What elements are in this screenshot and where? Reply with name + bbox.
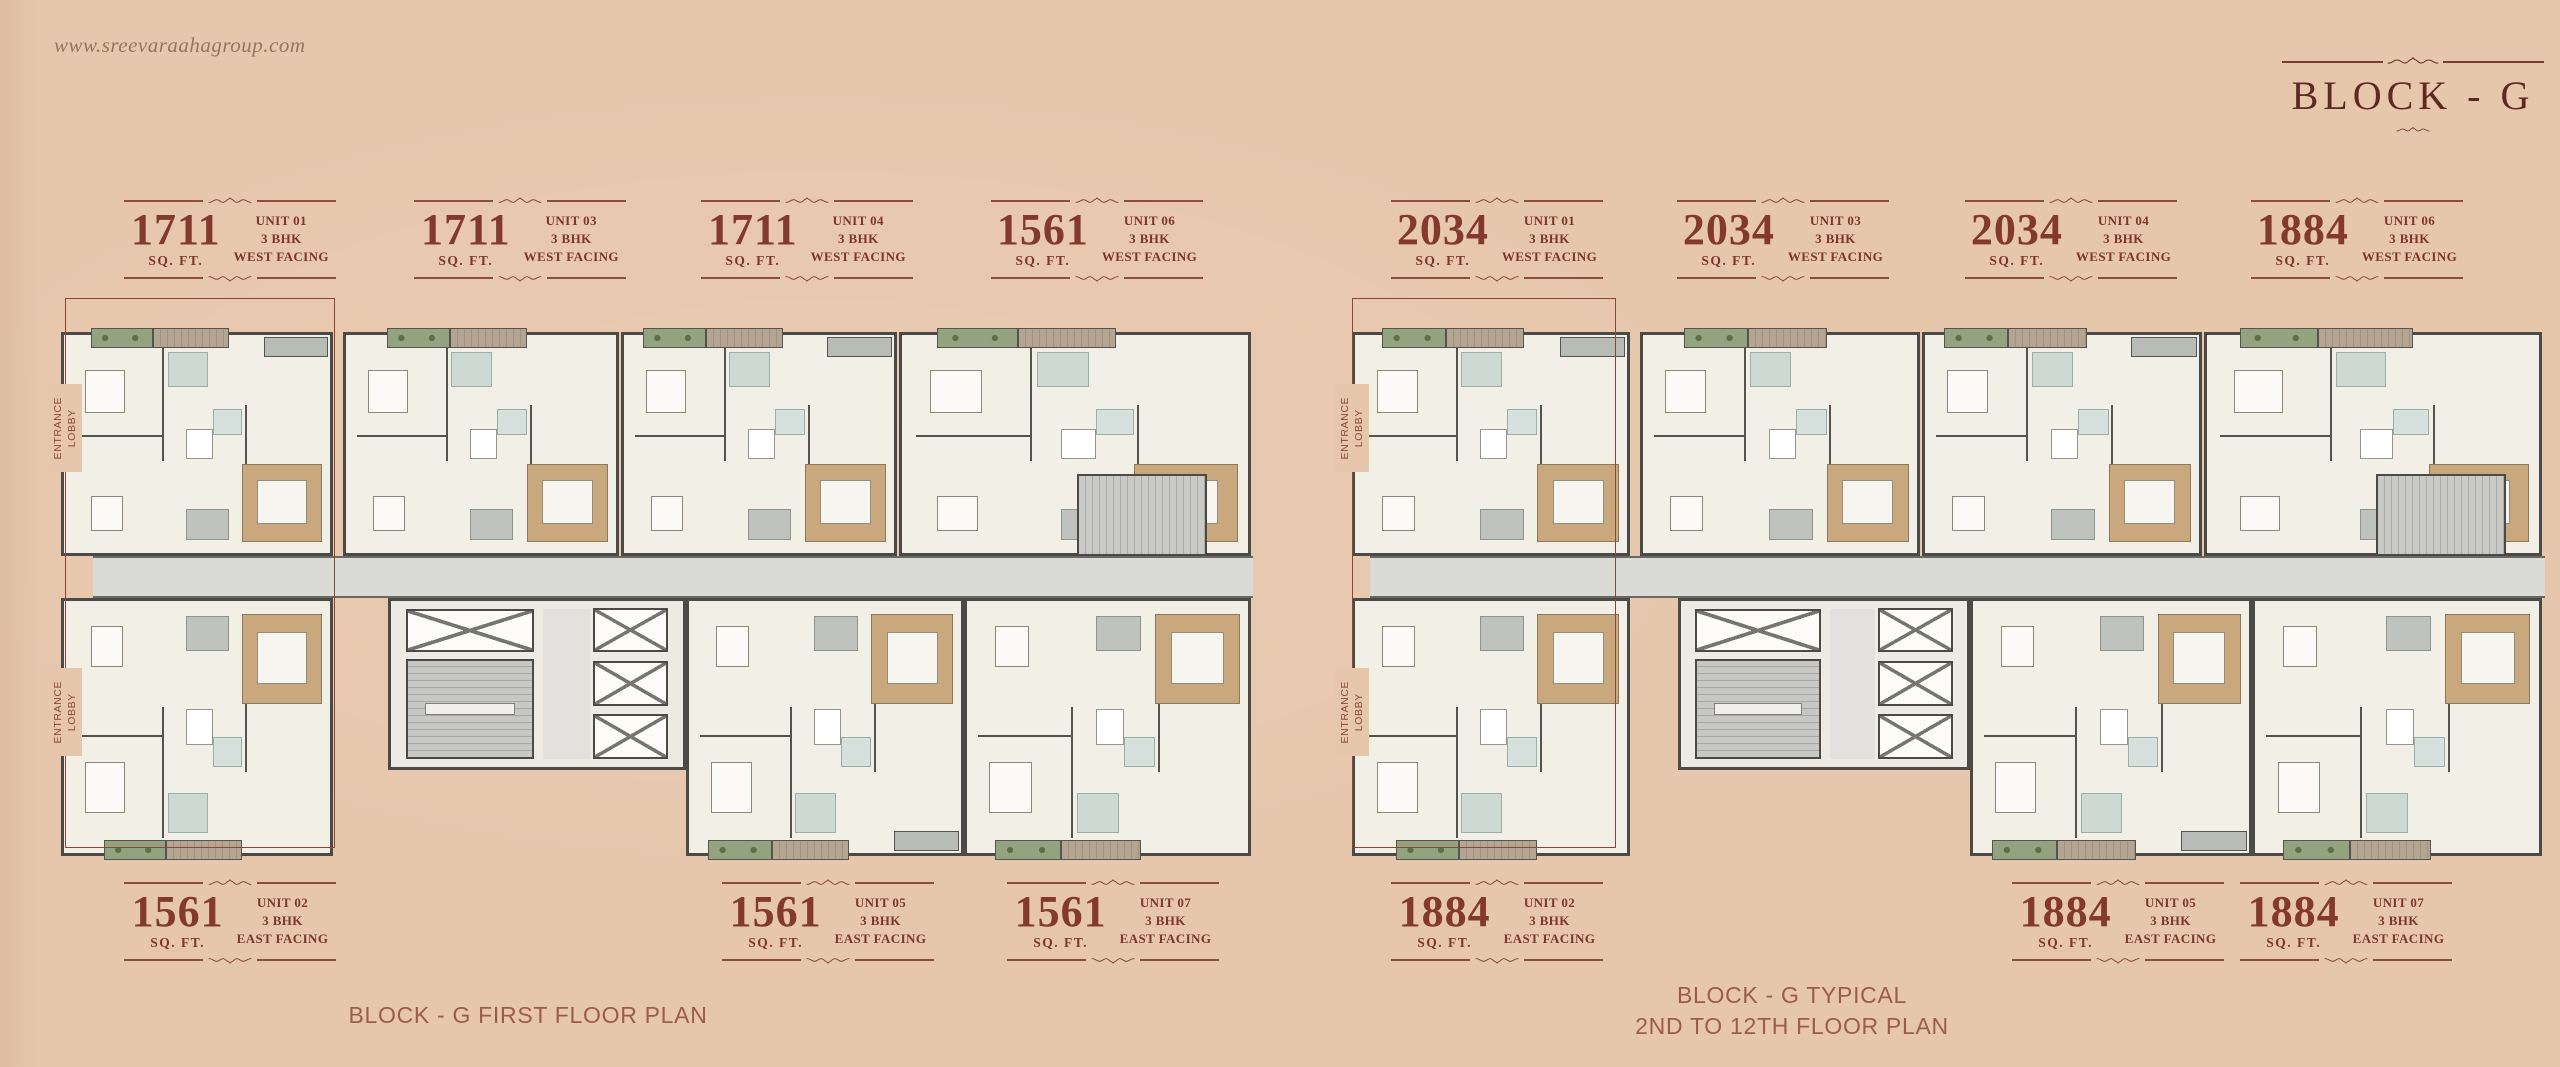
unit-facing: WEST FACING: [811, 248, 906, 266]
kitchen: [186, 616, 229, 651]
planter-balcony: [387, 328, 450, 348]
unit-number: UNIT 07: [1120, 894, 1212, 912]
apartment-unit: [2252, 598, 2542, 856]
bed: [716, 626, 749, 666]
lift-shaft: [593, 661, 669, 706]
bed: [1995, 762, 2036, 812]
unit-type: 3 BHK: [1504, 912, 1596, 930]
plan-caption-line: BLOCK - G FIRST FLOOR PLAN: [348, 1000, 707, 1031]
flourish-ornament-icon: [1475, 273, 1519, 283]
interior-wall: [2220, 435, 2330, 437]
bathroom: [2032, 352, 2073, 387]
flourish-ornament-icon: [208, 273, 252, 283]
area-value: 2034: [1683, 209, 1775, 251]
utility-deck: [264, 337, 328, 357]
master-bedroom: [1827, 464, 1909, 542]
flourish-rule: [1007, 955, 1219, 965]
unit-facing: WEST FACING: [1102, 248, 1197, 266]
utility-deck: [827, 337, 892, 357]
bed: [373, 496, 405, 531]
bathroom: [2128, 737, 2158, 767]
unit-label-body: 1711SQ. FT.UNIT 043 BHKWEST FACING: [701, 206, 913, 273]
floor-plan: ENTRANCE LOBBYENTRANCE LOBBY: [55, 298, 1253, 862]
unit-number: UNIT 01: [1502, 212, 1597, 230]
flourish-rule: [2012, 955, 2224, 965]
interior-wall: [75, 735, 163, 737]
deck-balcony: [2350, 840, 2431, 860]
bed: [2461, 632, 2514, 683]
interior-wall: [162, 348, 164, 461]
master-bedroom: [1155, 614, 1239, 705]
kitchen: [2051, 509, 2095, 540]
bathroom: [1096, 409, 1134, 435]
corridor: [1370, 556, 2545, 598]
unit-facing: EAST FACING: [2125, 930, 2217, 948]
corridor: [93, 556, 1253, 598]
planter-balcony: [708, 840, 772, 860]
area-value: 1561: [997, 209, 1089, 251]
unit-label-body: 1884SQ. FT.UNIT 053 BHKEAST FACING: [2012, 888, 2224, 955]
bathroom: [1037, 352, 1089, 387]
area-value: 1884: [1399, 891, 1491, 933]
entrance-lobby-label: ENTRANCE LOBBY: [48, 668, 82, 756]
apartment-unit: [61, 598, 333, 856]
deck-balcony: [450, 328, 527, 348]
planter-balcony: [1944, 328, 2008, 348]
bathroom: [1461, 793, 1502, 833]
bathroom: [2336, 352, 2386, 387]
bathroom: [2081, 793, 2122, 833]
unit-info: UNIT 023 BHKEAST FACING: [1504, 894, 1596, 948]
area-block: 1561SQ. FT.: [132, 891, 224, 951]
bathroom: [2078, 409, 2108, 435]
unit-number: UNIT 04: [811, 212, 906, 230]
interior-wall: [2026, 348, 2028, 461]
flourish-rule: [1965, 273, 2177, 283]
interior-wall: [1030, 348, 1032, 461]
block-g-floorplan-poster: www.sreevaraahagroup.com BLOCK - G 1711S…: [0, 0, 2560, 1067]
unit-label-body: 2034SQ. FT.UNIT 013 BHKWEST FACING: [1391, 206, 1603, 273]
bed: [1382, 496, 1415, 531]
unit-area-label: 1884SQ. FT.UNIT 073 BHKEAST FACING: [2240, 878, 2452, 965]
bed: [1665, 370, 1706, 414]
bathroom: [168, 352, 208, 387]
bathroom: [451, 352, 492, 387]
balcony-strip: [104, 840, 242, 860]
lift-shaft: [1878, 661, 1952, 706]
interior-wall: [790, 707, 792, 838]
unit-info: UNIT 013 BHKWEST FACING: [1502, 212, 1597, 266]
apartment-unit: [621, 332, 897, 556]
bed: [368, 370, 409, 414]
area-value: 1711: [421, 209, 511, 251]
unit-facing: EAST FACING: [237, 930, 329, 948]
bathroom: [1461, 352, 1502, 387]
unit-facing: EAST FACING: [1120, 930, 1212, 948]
lift-shaft: [593, 608, 669, 653]
balcony-strip: [708, 840, 849, 860]
unit-facing: EAST FACING: [1504, 930, 1596, 948]
kitchen: [2386, 616, 2431, 651]
flourish-rule: [1391, 273, 1603, 283]
unit-area-label: 1711SQ. FT.UNIT 033 BHKWEST FACING: [414, 196, 626, 283]
bathroom: [1796, 409, 1826, 435]
unit-area-label: 1711SQ. FT.UNIT 043 BHKWEST FACING: [701, 196, 913, 283]
entrance-lobby-text: ENTRANCE LOBBY: [51, 397, 79, 460]
bathroom: [213, 409, 242, 435]
area-unit: SQ. FT.: [2257, 253, 2349, 269]
unit-label-body: 1711SQ. FT.UNIT 033 BHKWEST FACING: [414, 206, 626, 273]
master-bedroom: [242, 614, 322, 705]
area-unit: SQ. FT.: [1015, 935, 1107, 951]
deck-balcony: [2008, 328, 2086, 348]
interior-wall: [978, 735, 1071, 737]
bathroom: [1750, 352, 1791, 387]
unit-facing: WEST FACING: [524, 248, 619, 266]
unit-info: UNIT 063 BHKWEST FACING: [1102, 212, 1197, 266]
area-unit: SQ. FT.: [1971, 253, 2063, 269]
planter-balcony: [104, 840, 166, 860]
unit-label-body: 2034SQ. FT.UNIT 043 BHKWEST FACING: [1965, 206, 2177, 273]
flourish-ornament-icon: [1475, 955, 1519, 965]
unit-number: UNIT 02: [1504, 894, 1596, 912]
interior-wall: [2360, 707, 2362, 838]
bathroom: [775, 409, 805, 435]
kitchen: [1769, 509, 1813, 540]
interior-wall: [1071, 707, 1073, 838]
area-unit: SQ. FT.: [2020, 935, 2112, 951]
flourish-ornament-icon: [208, 955, 252, 965]
flourish-ornament-icon: [2387, 56, 2439, 67]
rule-line: [2282, 61, 2383, 63]
bed: [1382, 626, 1415, 666]
unit-info: UNIT 063 BHKWEST FACING: [2362, 212, 2457, 266]
bed: [646, 370, 687, 414]
block-title-text: BLOCK - G: [2282, 72, 2544, 119]
bed: [820, 480, 871, 524]
interior-wall: [1654, 435, 1744, 437]
flourish-rule: [1391, 955, 1603, 965]
area-unit: SQ. FT.: [1399, 935, 1491, 951]
unit-info: UNIT 023 BHKEAST FACING: [237, 894, 329, 948]
unit-label-body: 1884SQ. FT.UNIT 073 BHKEAST FACING: [2240, 888, 2452, 955]
flourish-ornament-icon: [1761, 273, 1805, 283]
unit-number: UNIT 01: [234, 212, 329, 230]
interior-wall: [916, 435, 1030, 437]
area-block: 1884SQ. FT.: [2248, 891, 2340, 951]
utility-deck: [1560, 337, 1625, 357]
unit-type: 3 BHK: [2076, 230, 2171, 248]
bed: [91, 626, 123, 666]
unit-area-label: 1561SQ. FT.UNIT 063 BHKWEST FACING: [991, 196, 1203, 283]
bed: [2283, 626, 2317, 666]
entrance-lobby-label: ENTRANCE LOBBY: [48, 384, 82, 472]
interior-wall: [1456, 707, 1458, 838]
bed: [2278, 762, 2321, 812]
unit-info: UNIT 073 BHKEAST FACING: [1120, 894, 1212, 948]
unit-number: UNIT 05: [835, 894, 927, 912]
area-value: 2034: [1397, 209, 1489, 251]
flourish-ornament-icon: [2049, 273, 2093, 283]
bathroom: [795, 793, 836, 833]
unit-facing: EAST FACING: [835, 930, 927, 948]
flourish-ornament-icon: [785, 273, 829, 283]
bed: [542, 480, 593, 524]
apartment-unit: [964, 598, 1251, 856]
bathroom: [841, 737, 871, 767]
interior-wall: [357, 435, 446, 437]
master-bedroom: [805, 464, 886, 542]
unit-number: UNIT 06: [1102, 212, 1197, 230]
website-url: www.sreevaraahagroup.com: [54, 33, 306, 58]
planter-balcony: [2283, 840, 2349, 860]
bed: [1377, 370, 1418, 414]
unit-number: UNIT 07: [2353, 894, 2445, 912]
deck-balcony: [2057, 840, 2136, 860]
unit-label-body: 2034SQ. FT.UNIT 033 BHKWEST FACING: [1677, 206, 1889, 273]
unit-type: 3 BHK: [2362, 230, 2457, 248]
area-unit: SQ. FT.: [131, 253, 221, 269]
flourish-rule: [124, 955, 336, 965]
bed: [711, 762, 752, 812]
apartment-unit: [61, 332, 333, 556]
entrance-lobby-label: ENTRANCE LOBBY: [1335, 384, 1369, 472]
interior-wall: [2266, 735, 2360, 737]
area-unit: SQ. FT.: [421, 253, 511, 269]
plan-caption-line: 2ND TO 12TH FLOOR PLAN: [1635, 1011, 1949, 1042]
unit-number: UNIT 02: [237, 894, 329, 912]
lift-shaft: [593, 714, 669, 759]
bed: [1670, 496, 1703, 531]
utility-deck: [894, 831, 959, 851]
dining-table: [2051, 429, 2078, 460]
area-value: 2034: [1971, 209, 2063, 251]
balcony-strip: [1396, 840, 1537, 860]
block-title: BLOCK - G: [2282, 56, 2544, 134]
area-unit: SQ. FT.: [132, 935, 224, 951]
bed: [1377, 762, 1418, 812]
unit-label-body: 1561SQ. FT.UNIT 053 BHKEAST FACING: [722, 888, 934, 955]
lift-lobby: [543, 609, 590, 758]
utility-deck: [2131, 337, 2197, 357]
unit-label-body: 1711SQ. FT.UNIT 013 BHKWEST FACING: [124, 206, 336, 273]
bed: [2001, 626, 2034, 666]
area-block: 1561SQ. FT.: [997, 209, 1089, 269]
lift-stair-core: [1678, 598, 1970, 770]
unit-number: UNIT 03: [1788, 212, 1883, 230]
area-value: 1561: [132, 891, 224, 933]
plan-caption: BLOCK - G FIRST FLOOR PLAN: [348, 1000, 707, 1031]
stair-rail: [425, 703, 515, 714]
bathroom: [2366, 793, 2409, 833]
interior-wall: [75, 435, 163, 437]
lift-shaft: [1878, 608, 1952, 653]
area-unit: SQ. FT.: [2248, 935, 2340, 951]
bed: [930, 370, 982, 414]
bed: [651, 496, 683, 531]
unit-area-label: 2034SQ. FT.UNIT 043 BHKWEST FACING: [1965, 196, 2177, 283]
unit-info: UNIT 043 BHKWEST FACING: [811, 212, 906, 266]
bed: [1553, 632, 1604, 683]
unit-label-body: 1561SQ. FT.UNIT 063 BHKWEST FACING: [991, 206, 1203, 273]
staircase: [406, 659, 534, 759]
bed: [1842, 480, 1893, 524]
flourish-rule: [124, 273, 336, 283]
area-block: 2034SQ. FT.: [1397, 209, 1489, 269]
interior-wall: [700, 735, 790, 737]
bed: [989, 762, 1031, 812]
area-block: 1561SQ. FT.: [1015, 891, 1107, 951]
entrance-lobby-text: ENTRANCE LOBBY: [1338, 681, 1366, 744]
utility-deck: [2181, 831, 2247, 851]
unit-number: UNIT 06: [2362, 212, 2457, 230]
area-block: 1711SQ. FT.: [131, 209, 221, 269]
balcony-strip: [2283, 840, 2431, 860]
area-block: 2034SQ. FT.: [1971, 209, 2063, 269]
apartment-unit: [1970, 598, 2252, 856]
bed: [1947, 370, 1988, 414]
area-value: 1884: [2020, 891, 2112, 933]
entrance-lobby-text: ENTRANCE LOBBY: [51, 681, 79, 744]
bed: [2234, 370, 2284, 414]
dining-table: [2100, 709, 2128, 744]
dining-table: [470, 429, 497, 460]
balcony-strip: [1684, 328, 1826, 348]
flourish-ornament-icon: [806, 955, 850, 965]
deck-balcony: [1061, 840, 1141, 860]
floor-plan: ENTRANCE LOBBYENTRANCE LOBBY: [1330, 298, 2545, 862]
balcony-strip: [387, 328, 527, 348]
interior-wall: [724, 348, 726, 461]
unit-type: 3 BHK: [1502, 230, 1597, 248]
unit-info: UNIT 043 BHKWEST FACING: [2076, 212, 2171, 266]
kitchen: [814, 616, 858, 651]
unit-area-label: 1884SQ. FT.UNIT 053 BHKEAST FACING: [2012, 878, 2224, 965]
balcony-strip: [937, 328, 1117, 348]
deck-balcony: [772, 840, 850, 860]
unit-label-body: 1561SQ. FT.UNIT 073 BHKEAST FACING: [1007, 888, 1219, 955]
unit-facing: WEST FACING: [2076, 248, 2171, 266]
flourish-ornament-icon: [2335, 273, 2379, 283]
apartment-unit: [1352, 332, 1630, 556]
kitchen: [748, 509, 791, 540]
bathroom: [1077, 793, 1119, 833]
rule-line: [2443, 61, 2544, 63]
bed: [1171, 632, 1224, 683]
deck-balcony: [1459, 840, 1537, 860]
flourish-rule: [2251, 273, 2463, 283]
flourish-rule: [722, 955, 934, 965]
deck-balcony: [1748, 328, 1826, 348]
lift-shaft: [406, 609, 534, 652]
flourish-rule: [414, 273, 626, 283]
unit-info: UNIT 053 BHKEAST FACING: [835, 894, 927, 948]
flourish-rule: [1677, 273, 1889, 283]
unit-type: 3 BHK: [524, 230, 619, 248]
area-unit: SQ. FT.: [997, 253, 1089, 269]
balcony-strip: [1944, 328, 2086, 348]
deck-balcony: [1446, 328, 1524, 348]
stair-rail: [1714, 703, 1802, 714]
plan-caption: BLOCK - G TYPICAL2ND TO 12TH FLOOR PLAN: [1635, 980, 1949, 1042]
apartment-unit: [686, 598, 964, 856]
unit-facing: WEST FACING: [234, 248, 329, 266]
master-bedroom: [1537, 614, 1619, 705]
plan-caption-line: BLOCK - G TYPICAL: [1635, 980, 1949, 1011]
kitchen: [1480, 509, 1524, 540]
area-unit: SQ. FT.: [708, 253, 798, 269]
area-block: 1884SQ. FT.: [2257, 209, 2349, 269]
lift-shaft: [1695, 609, 1821, 652]
staircase: [2376, 474, 2506, 556]
unit-type: 3 BHK: [1788, 230, 1883, 248]
planter-balcony: [1992, 840, 2057, 860]
kitchen: [186, 509, 229, 540]
bathroom: [1507, 737, 1537, 767]
bed: [2173, 632, 2225, 683]
unit-info: UNIT 053 BHKEAST FACING: [2125, 894, 2217, 948]
area-unit: SQ. FT.: [730, 935, 822, 951]
unit-type: 3 BHK: [2353, 912, 2445, 930]
bed: [91, 496, 123, 531]
dining-table: [186, 429, 213, 460]
unit-area-label: 1561SQ. FT.UNIT 053 BHKEAST FACING: [722, 878, 934, 965]
master-bedroom: [242, 464, 322, 542]
planter-balcony: [1382, 328, 1446, 348]
bed: [2124, 480, 2175, 524]
interior-wall: [1456, 348, 1458, 461]
interior-wall: [446, 348, 448, 461]
flourish-ornament-icon: [498, 273, 542, 283]
bed: [85, 370, 125, 414]
unit-area-label: 2034SQ. FT.UNIT 013 BHKWEST FACING: [1391, 196, 1603, 283]
bathroom: [497, 409, 527, 435]
area-block: 1561SQ. FT.: [730, 891, 822, 951]
flourish-ornament-icon: [1091, 955, 1135, 965]
planter-balcony: [643, 328, 706, 348]
area-value: 1884: [2248, 891, 2340, 933]
dining-table: [186, 709, 213, 744]
area-value: 1884: [2257, 209, 2349, 251]
title-flourish-rule: [2282, 56, 2544, 67]
master-bedroom: [2445, 614, 2530, 705]
interior-wall: [1366, 435, 1456, 437]
unit-info: UNIT 033 BHKWEST FACING: [524, 212, 619, 266]
bathroom: [213, 737, 242, 767]
unit-area-label: 1884SQ. FT.UNIT 023 BHKEAST FACING: [1391, 878, 1603, 965]
unit-number: UNIT 05: [2125, 894, 2217, 912]
interior-wall: [2075, 707, 2077, 838]
balcony-strip: [1382, 328, 1523, 348]
unit-label-body: 1884SQ. FT.UNIT 023 BHKEAST FACING: [1391, 888, 1603, 955]
bathroom: [2393, 409, 2430, 435]
dining-table: [2386, 709, 2414, 744]
balcony-strip: [643, 328, 783, 348]
interior-wall: [1984, 735, 2075, 737]
area-value: 1711: [708, 209, 798, 251]
apartment-unit: [1922, 332, 2202, 556]
unit-facing: WEST FACING: [2362, 248, 2457, 266]
apartment-unit: [1352, 598, 1630, 856]
deck-balcony: [2318, 328, 2413, 348]
dining-table: [2360, 429, 2393, 460]
unit-number: UNIT 03: [524, 212, 619, 230]
staircase: [1077, 474, 1207, 556]
unit-info: UNIT 013 BHKWEST FACING: [234, 212, 329, 266]
unit-label-body: 1561SQ. FT.UNIT 023 BHKEAST FACING: [124, 888, 336, 955]
unit-type: 3 BHK: [811, 230, 906, 248]
area-block: 1711SQ. FT.: [708, 209, 798, 269]
